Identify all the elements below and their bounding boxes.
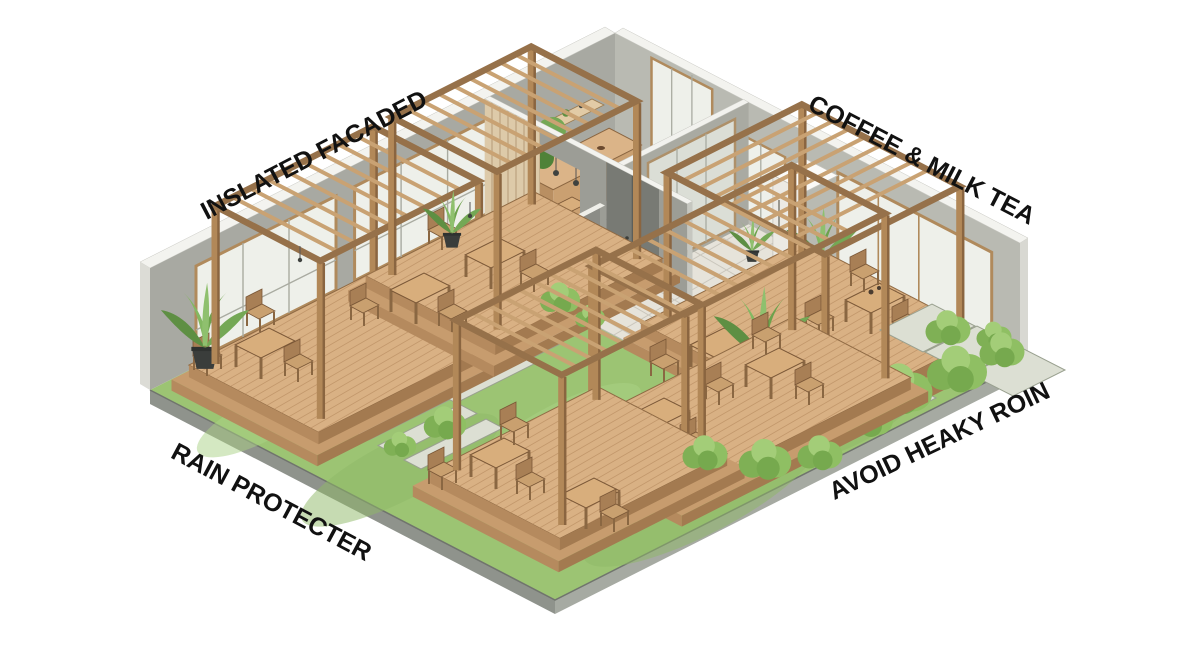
illustration-canvas: INSLATED FACADED COFFEE & MILK TEA RAIN … (0, 0, 1200, 654)
isometric-scene (0, 0, 1200, 654)
